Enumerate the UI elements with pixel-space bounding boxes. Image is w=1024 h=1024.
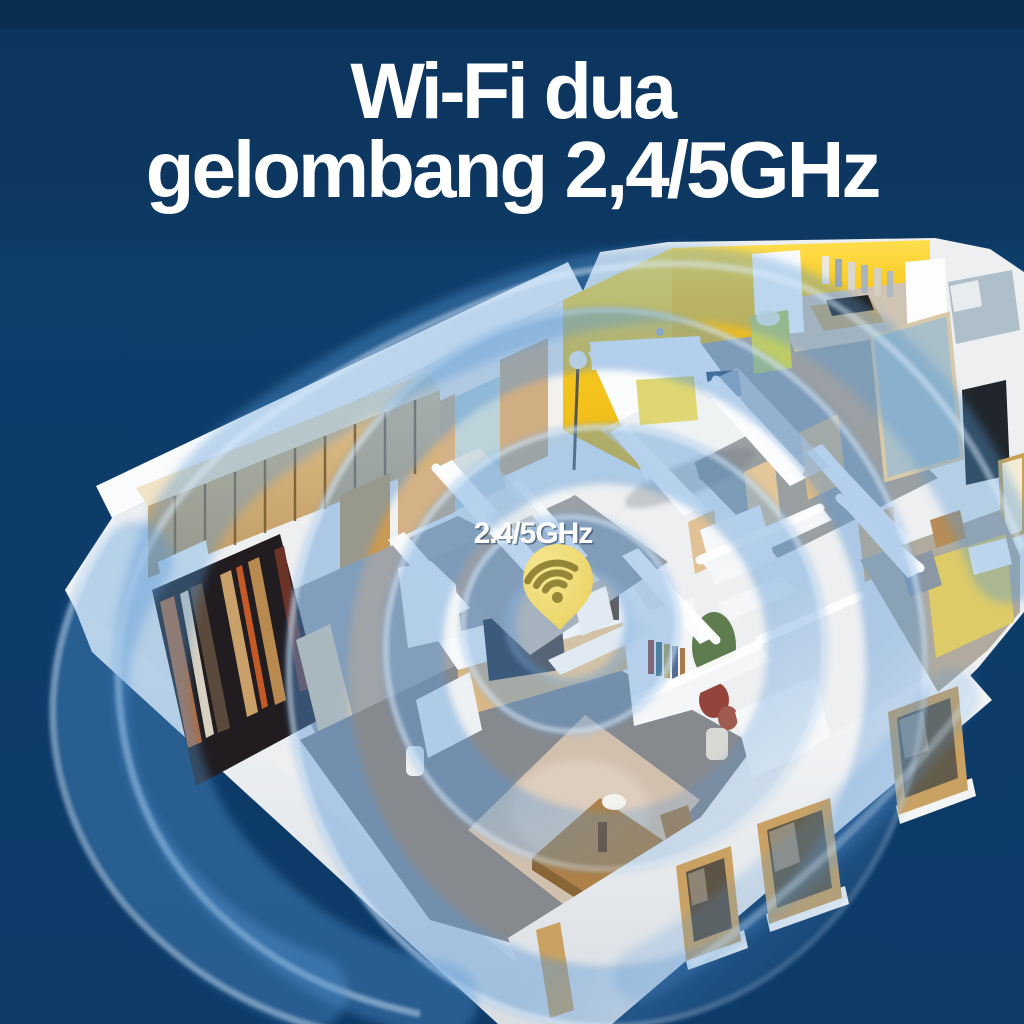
svg-text:gelombang 2,4/5GHz: gelombang 2,4/5GHz — [146, 125, 880, 214]
svg-text:Wi-Fi dua: Wi-Fi dua — [350, 46, 678, 135]
svg-text:2.4/5GHz: 2.4/5GHz — [474, 517, 593, 550]
